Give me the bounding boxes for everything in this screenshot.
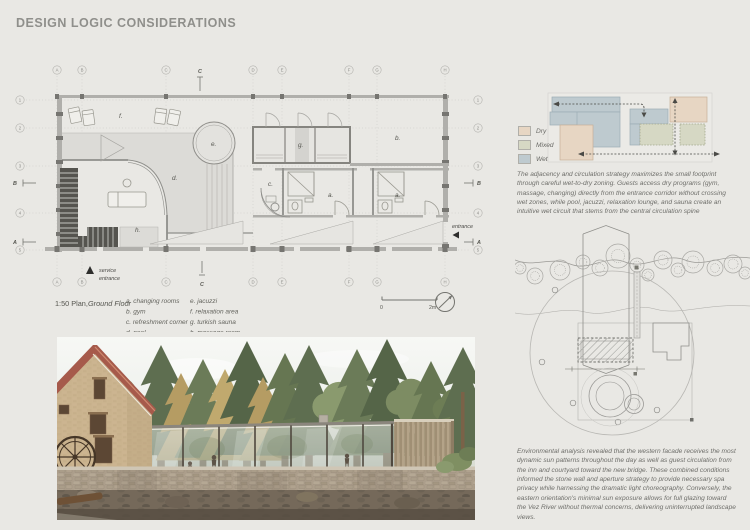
svg-text:C: C <box>198 69 202 75</box>
svg-text:f. relaxation area: f. relaxation area <box>190 309 239 316</box>
adjacency-paragraph: The adjacency and circulation strategy m… <box>517 170 735 217</box>
retaining-wall <box>57 467 475 493</box>
svg-text:C: C <box>164 280 167 285</box>
svg-text:B: B <box>13 181 17 187</box>
svg-text:entrance: entrance <box>452 224 473 230</box>
spa-building-footprint <box>578 338 633 362</box>
svg-text:E: E <box>281 68 284 73</box>
svg-text:e. jacuzzi: e. jacuzzi <box>190 298 218 305</box>
svg-text:b. gym: b. gym <box>126 309 146 316</box>
svg-text:G: G <box>375 68 379 73</box>
svg-text:F: F <box>348 68 351 73</box>
svg-text:4: 4 <box>477 211 480 216</box>
svg-text:g.: g. <box>298 142 303 149</box>
mixed-swatch <box>518 140 531 150</box>
svg-text:2: 2 <box>19 126 22 131</box>
north-arrow-icon <box>436 293 455 312</box>
svg-text:C: C <box>164 68 167 73</box>
rocky-bank <box>57 490 475 520</box>
scale-bar <box>382 297 437 301</box>
legend-row-mixed: Mixed <box>518 138 554 152</box>
legend-row-wet: Wet <box>518 152 554 166</box>
courtyard-trees <box>581 368 644 426</box>
svg-text:g. turkish sauna: g. turkish sauna <box>190 319 236 326</box>
svg-text:A: A <box>476 240 481 246</box>
svg-text:1:50 Plan,: 1:50 Plan, <box>55 299 88 308</box>
refreshment-corner <box>261 188 290 217</box>
svg-text:1: 1 <box>477 98 480 103</box>
svg-text:f.: f. <box>119 113 123 120</box>
svg-text:c.: c. <box>268 181 273 188</box>
svg-text:3: 3 <box>477 164 480 169</box>
main-entrance: entrance <box>452 224 473 239</box>
gym-wall <box>350 163 449 166</box>
svg-text:b.: b. <box>395 135 400 142</box>
svg-text:B: B <box>81 280 84 285</box>
svg-text:D: D <box>251 68 254 73</box>
svg-text:C: C <box>200 282 204 288</box>
dimension-line <box>565 367 645 372</box>
svg-text:d. pool: d. pool <box>126 330 146 333</box>
changing-room-1 <box>288 172 349 215</box>
dry-swatch <box>518 126 531 136</box>
scale-2m: 2m <box>429 305 436 311</box>
svg-text:1: 1 <box>19 98 22 103</box>
presentation-board: DESIGN LOGIC CONSIDERATIONS AB C <box>0 0 750 530</box>
svg-text:h. massage room: h. massage room <box>190 330 241 333</box>
adjacency-legend: Dry Mixed Wet <box>518 124 554 166</box>
river-lines <box>515 257 750 314</box>
exterior-render <box>57 337 475 520</box>
svg-text:B: B <box>81 68 84 73</box>
service-entrance: service entrance <box>86 266 120 282</box>
floor-plan: AB CD EF GH AB CD EF GH 12 34 5 12 34 5 … <box>0 60 512 332</box>
bridge <box>634 266 641 376</box>
site-diagram <box>515 218 750 446</box>
svg-text:A: A <box>56 280 59 285</box>
svg-text:4: 4 <box>19 211 22 216</box>
svg-text:5: 5 <box>19 248 22 253</box>
page-title: DESIGN LOGIC CONSIDERATIONS <box>16 16 236 30</box>
svg-text:h.: h. <box>135 227 140 234</box>
boundary-marker <box>690 418 694 422</box>
svg-text:H: H <box>443 68 446 73</box>
scale-zero: 0 <box>380 305 383 311</box>
svg-text:2: 2 <box>477 126 480 131</box>
svg-text:a. changing rooms: a. changing rooms <box>126 298 180 305</box>
svg-text:d.: d. <box>172 175 177 182</box>
svg-text:e.: e. <box>211 141 216 148</box>
svg-text:D: D <box>251 280 254 285</box>
legend-row-dry: Dry <box>518 124 554 138</box>
lounge-chairs <box>68 107 181 126</box>
wet-label: Wet <box>536 156 548 163</box>
mixed-label: Mixed <box>536 142 554 149</box>
svg-text:a.: a. <box>328 192 333 199</box>
svg-text:F: F <box>348 280 351 285</box>
svg-text:5: 5 <box>477 248 480 253</box>
svg-text:3: 3 <box>19 164 22 169</box>
svg-text:service: service <box>99 268 116 274</box>
wet-swatch <box>518 154 531 164</box>
svg-text:H: H <box>443 280 446 285</box>
svg-text:E: E <box>281 280 284 285</box>
plan-caption: 1:50 Plan, Ground Floor <box>55 299 132 308</box>
svg-text:entrance: entrance <box>99 276 120 282</box>
dry-label: Dry <box>536 128 546 135</box>
inn-building <box>653 323 689 360</box>
svg-text:B: B <box>477 181 481 187</box>
svg-text:a.: a. <box>395 192 400 199</box>
plan-legend: a. changing rooms b. gym c. refreshment … <box>126 298 241 332</box>
svg-text:G: G <box>375 280 379 285</box>
turkish-sauna <box>253 113 350 163</box>
svg-text:A: A <box>56 68 59 73</box>
svg-text:A: A <box>12 240 17 246</box>
site-paragraph: Environmental analysis revealed that the… <box>517 447 737 522</box>
mixed-blocks <box>640 124 705 145</box>
svg-text:c. refreshment corner: c. refreshment corner <box>126 319 189 326</box>
changing-room-2 <box>378 172 439 215</box>
